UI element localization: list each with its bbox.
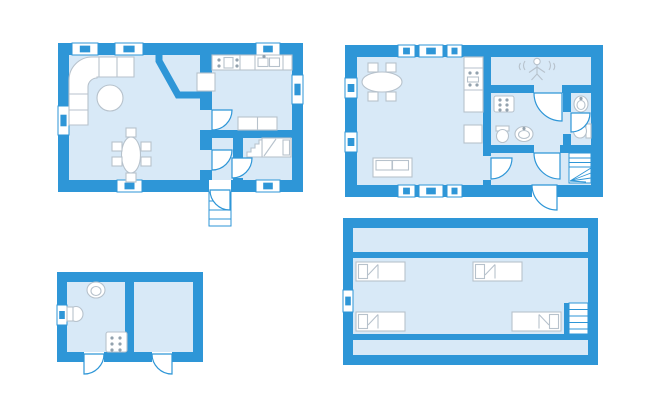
chair bbox=[126, 128, 136, 137]
bed-pillow bbox=[359, 315, 368, 329]
sofa-cushion bbox=[393, 161, 409, 171]
stove-burners bbox=[235, 58, 238, 61]
sauna-stove-dots bbox=[498, 98, 501, 101]
doorway bbox=[534, 145, 560, 153]
bed-pillow bbox=[283, 140, 290, 155]
washbasin-back bbox=[67, 307, 73, 321]
stove-burners bbox=[475, 71, 478, 74]
chair bbox=[368, 63, 378, 72]
sauna-stove-dots bbox=[505, 108, 508, 111]
window-sash bbox=[80, 46, 90, 53]
knee-wall bbox=[353, 252, 588, 258]
window-sash bbox=[263, 183, 273, 190]
doorway bbox=[200, 110, 212, 130]
window-sash bbox=[123, 46, 134, 53]
stove-oven bbox=[224, 58, 233, 69]
faucet bbox=[579, 97, 582, 100]
stove-dots bbox=[110, 336, 113, 339]
stove-oven bbox=[468, 77, 479, 82]
window-sash bbox=[348, 138, 355, 146]
bed-pillow bbox=[476, 265, 485, 279]
chair bbox=[141, 142, 151, 151]
doorway bbox=[534, 85, 562, 93]
doorway bbox=[563, 112, 571, 134]
stove-dots bbox=[118, 348, 121, 351]
door-swing bbox=[152, 354, 172, 374]
stove-burners bbox=[235, 64, 238, 67]
chair bbox=[141, 157, 151, 166]
window-sash bbox=[60, 115, 66, 127]
stove-dots bbox=[118, 342, 121, 345]
window-sash bbox=[452, 48, 458, 55]
chair bbox=[386, 92, 396, 101]
chair bbox=[112, 142, 122, 151]
bed-pillow bbox=[550, 315, 559, 329]
sauna-person-icon-head bbox=[534, 58, 540, 64]
bed-pillow bbox=[359, 265, 368, 279]
door-swing bbox=[532, 185, 557, 210]
window-sash bbox=[426, 48, 436, 55]
appliance bbox=[464, 125, 482, 143]
sauna-stove bbox=[494, 96, 514, 112]
window-sash bbox=[403, 188, 410, 195]
sink-faucet bbox=[262, 55, 265, 58]
stove-burners bbox=[468, 83, 471, 86]
floor-plan-outbuilding bbox=[57, 272, 203, 374]
kitchen-counter bbox=[464, 57, 483, 112]
stove bbox=[106, 332, 127, 352]
stove-burners bbox=[468, 71, 471, 74]
doorway bbox=[200, 150, 212, 170]
window-sash bbox=[403, 48, 410, 55]
window-sash bbox=[294, 84, 300, 96]
sauna-stove-dots bbox=[498, 103, 501, 106]
sauna-stove-dots bbox=[498, 108, 501, 111]
window-sash bbox=[125, 183, 135, 190]
sofa-cushion bbox=[376, 161, 392, 171]
floor-plan-page bbox=[0, 0, 650, 420]
window-sash bbox=[426, 188, 436, 195]
bedroom-wall-top bbox=[212, 130, 292, 138]
round-table bbox=[97, 85, 123, 111]
stove-dots bbox=[110, 348, 113, 351]
floor-plan-living-floor bbox=[58, 43, 303, 226]
toilet-bowl bbox=[497, 130, 509, 143]
chair bbox=[112, 157, 122, 166]
stove-dots bbox=[110, 342, 113, 345]
stove-burners bbox=[217, 58, 220, 61]
faucet bbox=[522, 127, 525, 130]
stairs-wall bbox=[564, 303, 569, 334]
window-sash bbox=[452, 188, 458, 195]
sauna-stove-dots bbox=[505, 103, 508, 106]
floor-plan-kitchen-sauna-floor bbox=[345, 45, 603, 210]
chair bbox=[386, 63, 396, 72]
sink-basin bbox=[270, 58, 280, 67]
doorway bbox=[483, 156, 491, 180]
dining-table bbox=[122, 137, 141, 173]
sauna-stove-dots bbox=[505, 98, 508, 101]
window-sash bbox=[59, 311, 65, 319]
chair bbox=[126, 173, 136, 182]
knee-wall bbox=[353, 334, 588, 340]
door-swing bbox=[84, 354, 104, 374]
chimney bbox=[197, 73, 215, 91]
window-sash bbox=[345, 297, 351, 306]
chair bbox=[368, 92, 378, 101]
sink-basin bbox=[258, 58, 268, 67]
floor-plan-attic bbox=[343, 218, 598, 365]
window-sash bbox=[263, 46, 273, 53]
floor-plan-drawing bbox=[0, 0, 650, 420]
stove-burners bbox=[217, 64, 220, 67]
window-sash bbox=[348, 84, 355, 92]
dining-table bbox=[362, 72, 402, 92]
stove-burners bbox=[475, 83, 478, 86]
stove-dots bbox=[118, 336, 121, 339]
